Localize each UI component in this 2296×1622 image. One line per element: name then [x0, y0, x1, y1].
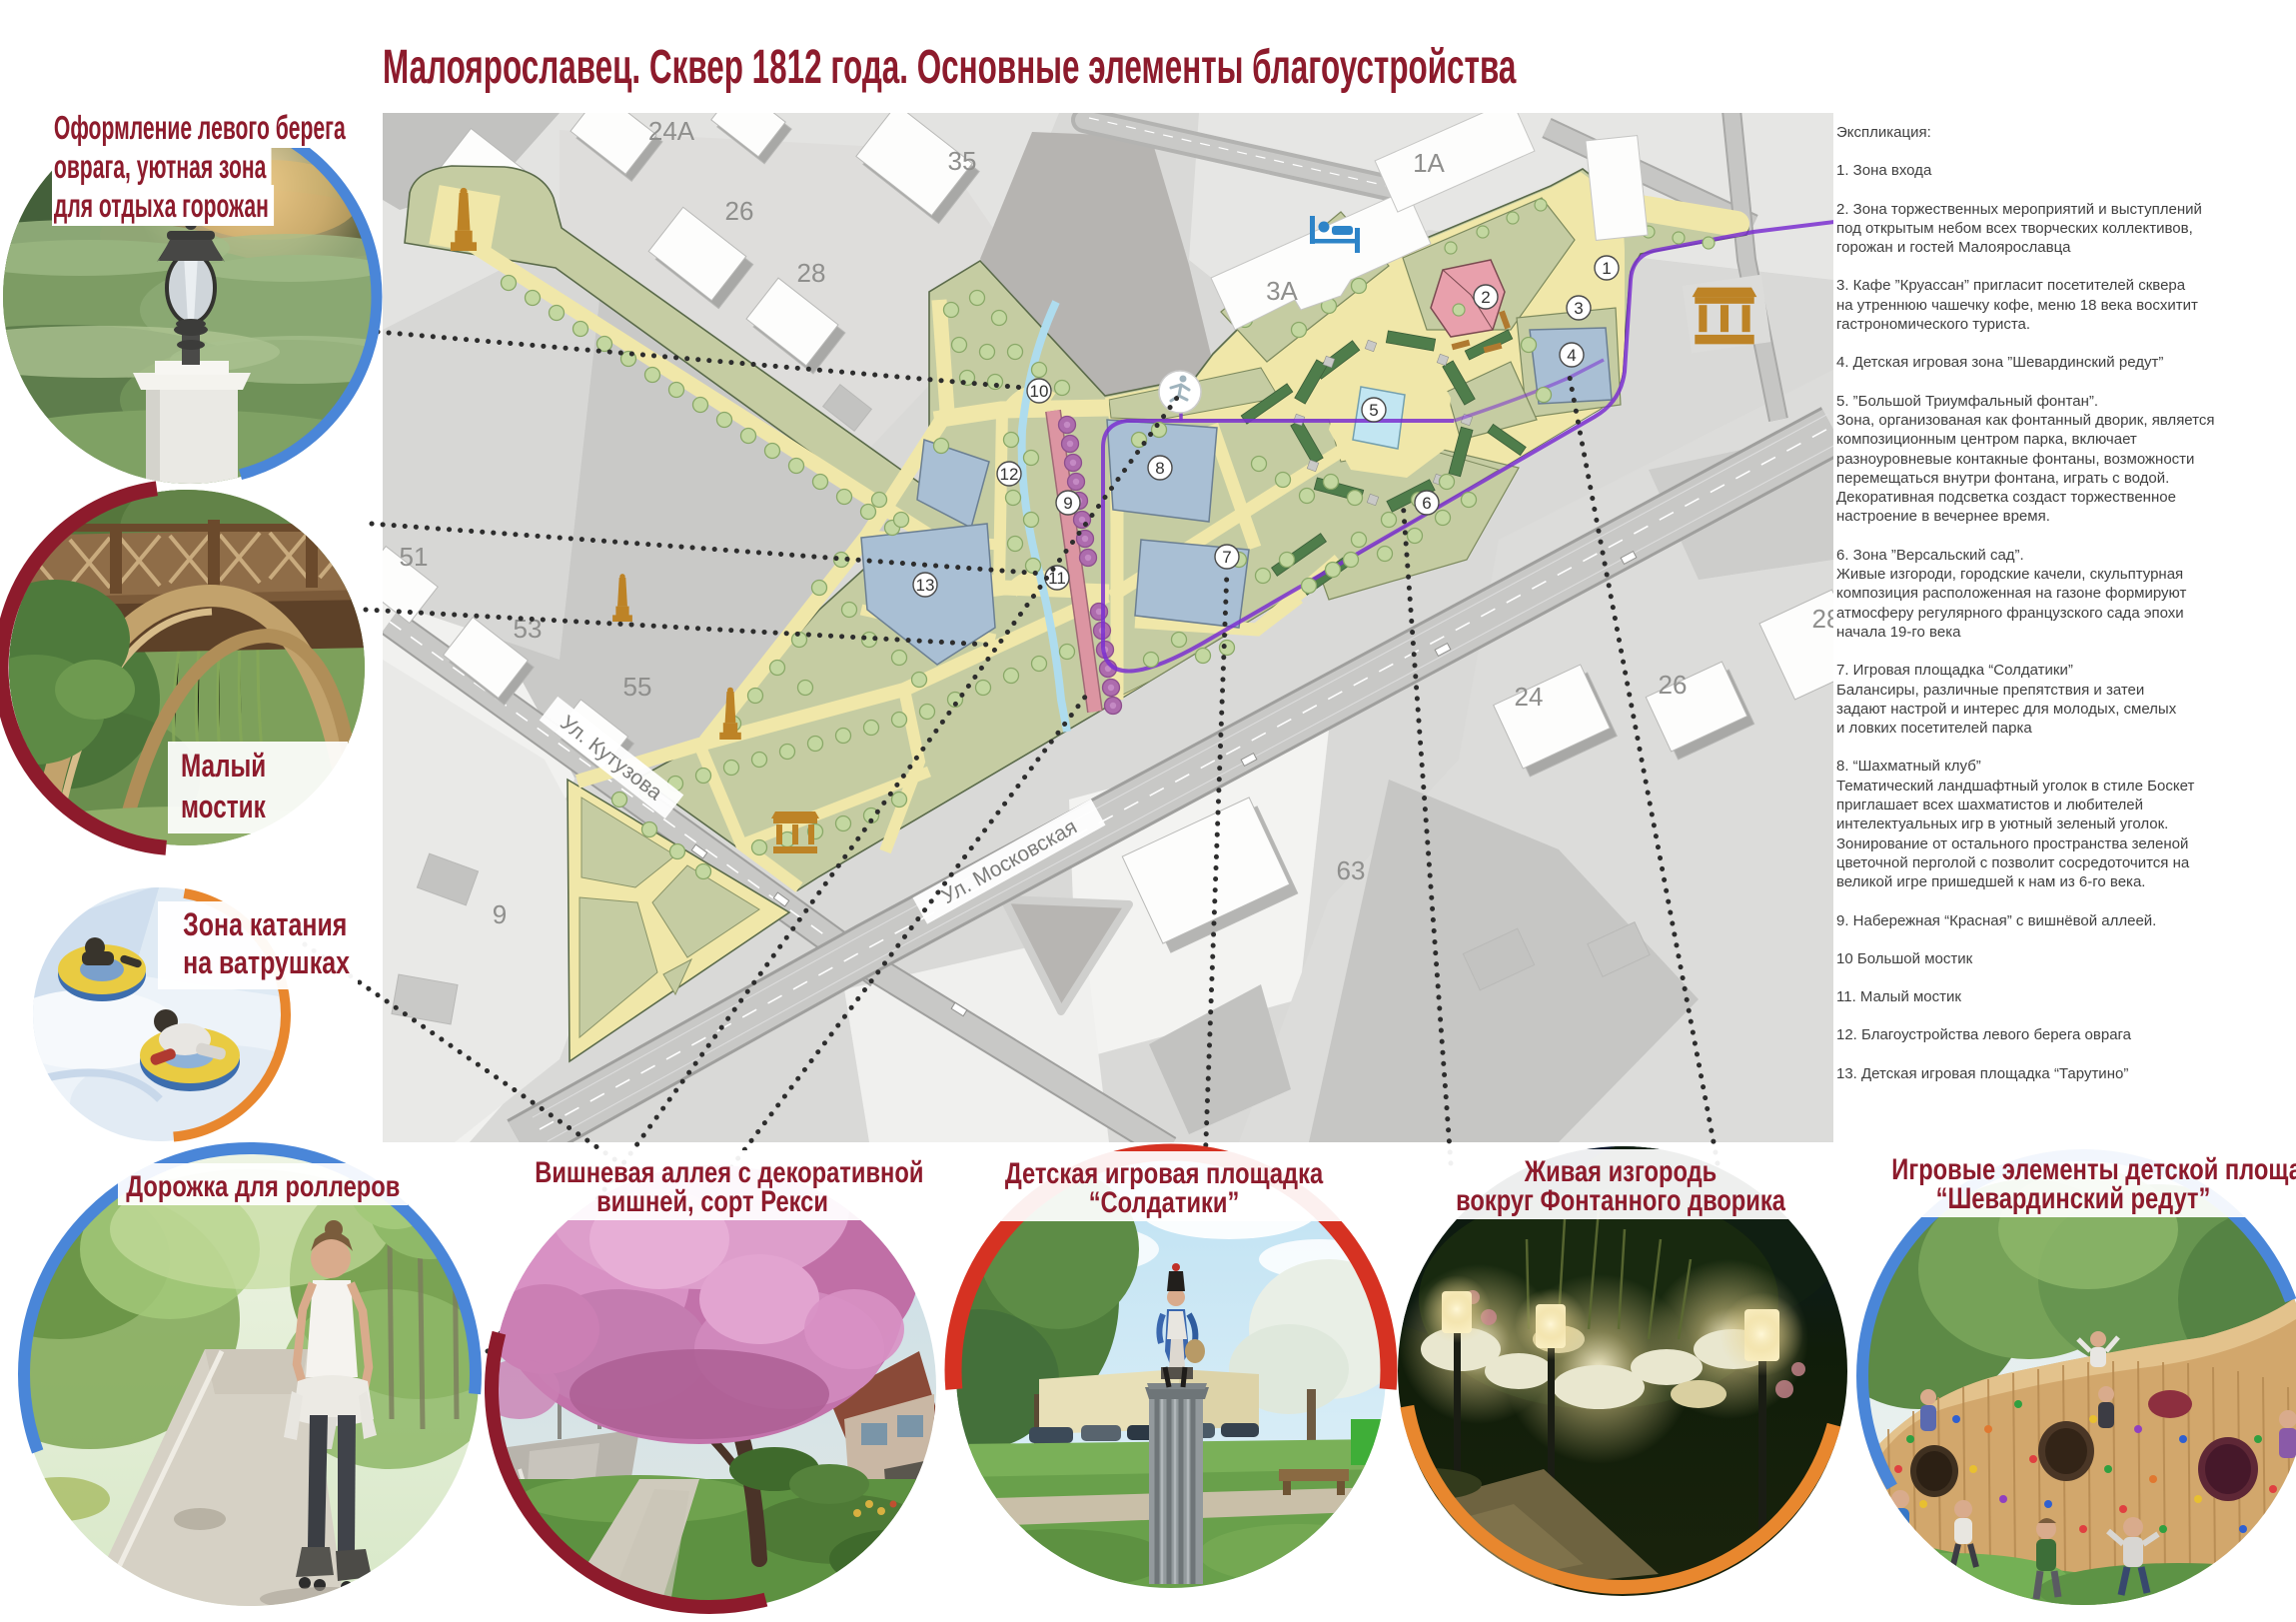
svg-text:24: 24: [1515, 682, 1544, 712]
svg-text:26: 26: [725, 196, 754, 226]
svg-text:1А: 1А: [1413, 148, 1445, 178]
svg-text:53: 53: [514, 614, 543, 644]
svg-text:7: 7: [1222, 548, 1231, 567]
svg-text:1: 1: [1602, 259, 1611, 278]
svg-text:28: 28: [797, 258, 826, 288]
svg-text:63: 63: [1337, 855, 1366, 885]
svg-text:51: 51: [400, 542, 429, 572]
svg-text:3А: 3А: [1266, 276, 1298, 306]
svg-text:2: 2: [1481, 288, 1490, 307]
svg-text:24А: 24А: [648, 116, 695, 146]
svg-text:26: 26: [1659, 670, 1688, 700]
svg-text:12: 12: [1000, 465, 1019, 484]
svg-text:4: 4: [1567, 346, 1576, 365]
svg-text:5: 5: [1369, 401, 1378, 420]
svg-text:9: 9: [493, 899, 507, 929]
svg-text:3: 3: [1574, 299, 1583, 318]
svg-text:6: 6: [1422, 494, 1431, 513]
svg-text:8: 8: [1155, 459, 1164, 478]
svg-text:35: 35: [948, 146, 977, 176]
svg-text:11: 11: [1048, 569, 1066, 588]
svg-text:9: 9: [1063, 494, 1072, 513]
svg-text:10: 10: [1030, 382, 1049, 401]
svg-text:55: 55: [623, 672, 652, 702]
svg-text:13: 13: [916, 576, 935, 595]
